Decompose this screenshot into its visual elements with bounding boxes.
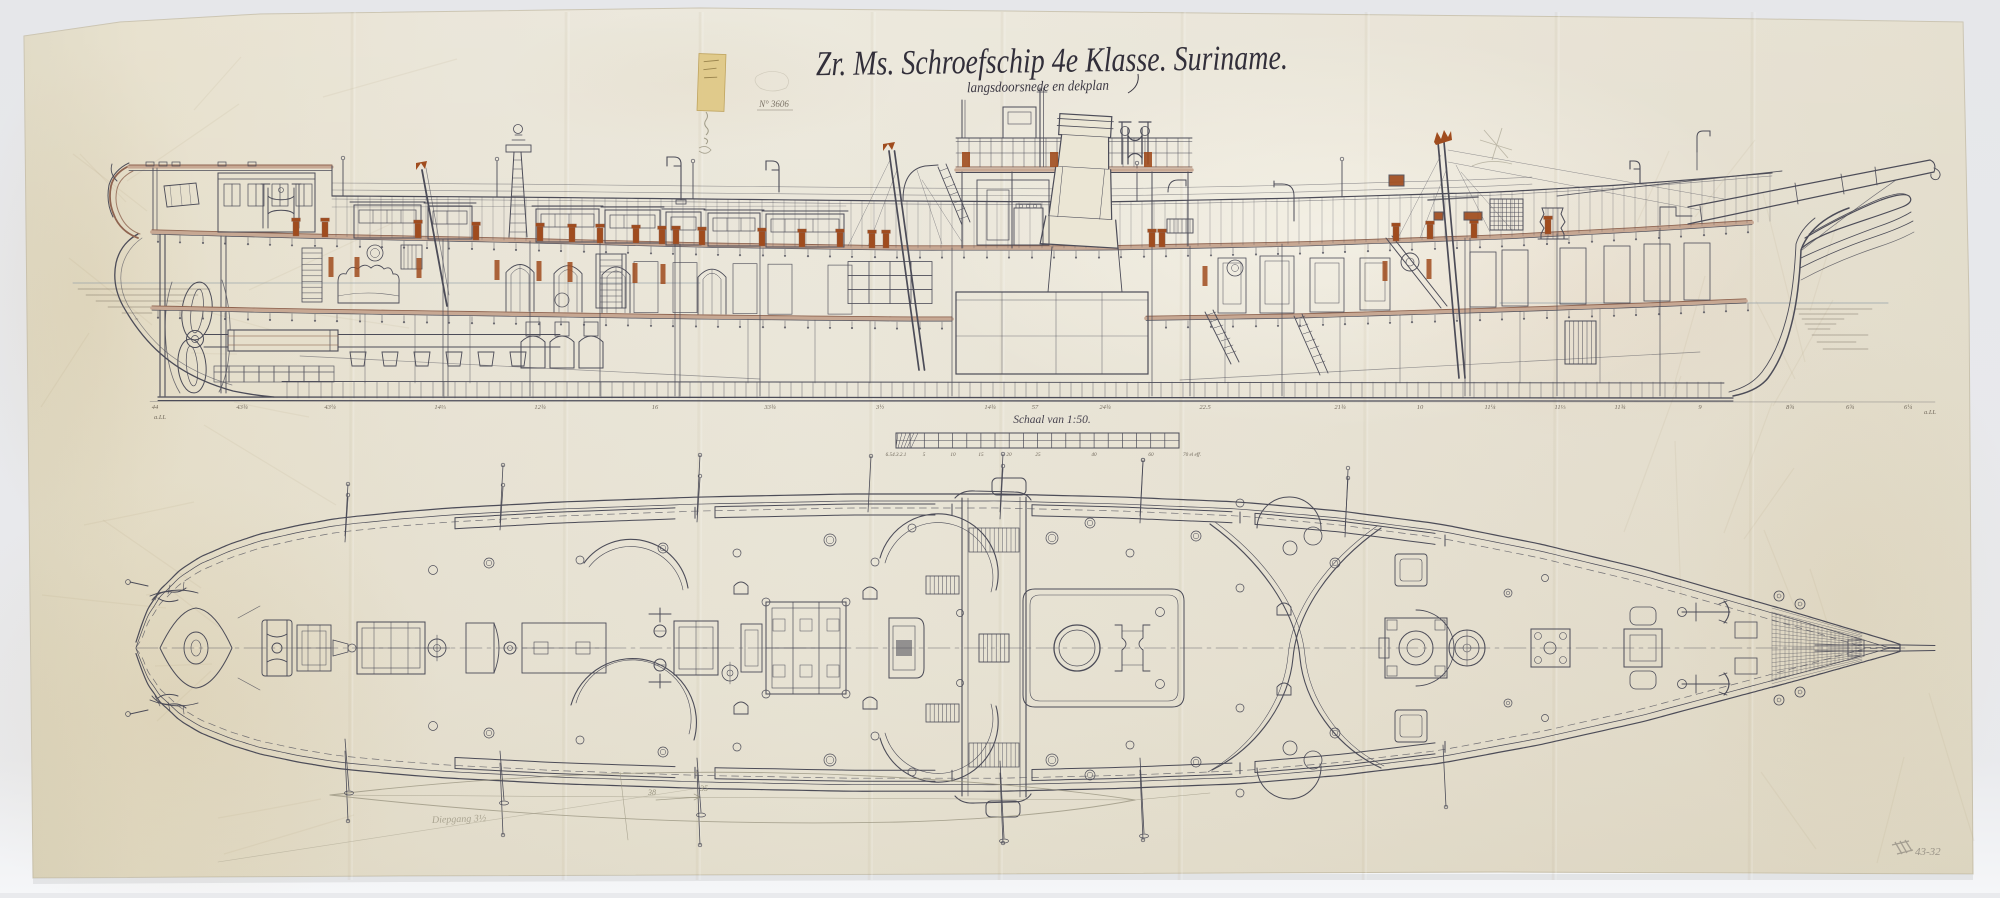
svg-text:35: 35 — [699, 784, 708, 793]
svg-text:11¼: 11¼ — [1485, 404, 1496, 411]
svg-text:Zr. Ms. Schroefschip 4e Klasse: Zr. Ms. Schroefschip 4e Klasse. Suriname… — [816, 38, 1288, 84]
svg-text:43¼: 43¼ — [324, 404, 336, 411]
svg-text:Diepgang 3½: Diepgang 3½ — [431, 813, 487, 826]
svg-text:6.54.3.2.1: 6.54.3.2.1 — [886, 451, 907, 458]
svg-text:a.LL: a.LL — [154, 414, 166, 421]
svg-text:60: 60 — [1148, 452, 1154, 458]
svg-text:10: 10 — [950, 452, 956, 458]
svg-text:6¾: 6¾ — [1846, 404, 1854, 411]
svg-text:6¼: 6¼ — [1904, 404, 1912, 411]
svg-text:43-32: 43-32 — [1915, 846, 1941, 858]
svg-text:43¾: 43¾ — [236, 404, 248, 411]
svg-text:11¾: 11¾ — [1615, 404, 1626, 411]
svg-text:24¾: 24¾ — [1099, 404, 1111, 411]
svg-text:44: 44 — [152, 404, 159, 411]
svg-text:langsdoorsnede en dekplan: langsdoorsnede en dekplan — [967, 78, 1109, 96]
svg-text:57: 57 — [1032, 404, 1039, 411]
svg-text:21¾: 21¾ — [1334, 404, 1346, 411]
svg-text:25: 25 — [1035, 452, 1041, 458]
svg-text:16: 16 — [652, 404, 659, 411]
svg-text:70 el eff.: 70 el eff. — [1183, 451, 1201, 458]
svg-text:a.LL: a.LL — [1924, 409, 1936, 416]
svg-text:11⅓: 11⅓ — [1555, 404, 1566, 411]
svg-text:5: 5 — [923, 452, 926, 458]
svg-text:33¾: 33¾ — [763, 404, 776, 411]
svg-text:40: 40 — [1091, 451, 1097, 458]
svg-text:20: 20 — [1006, 452, 1012, 458]
svg-text:12¾: 12¾ — [534, 404, 546, 411]
svg-text:14⅓: 14⅓ — [434, 404, 446, 411]
svg-text:15: 15 — [978, 452, 984, 458]
svg-text:3½: 3½ — [875, 404, 884, 411]
svg-text:22.5: 22.5 — [1199, 404, 1211, 411]
svg-text:10: 10 — [1417, 404, 1424, 411]
svg-text:14¾: 14¾ — [984, 404, 996, 411]
svg-text:8¾: 8¾ — [1786, 404, 1794, 411]
svg-text:Schaal van 1:50.: Schaal van 1:50. — [1013, 414, 1091, 426]
svg-text:N° 3606: N° 3606 — [758, 99, 789, 109]
svg-text:38: 38 — [647, 788, 656, 797]
